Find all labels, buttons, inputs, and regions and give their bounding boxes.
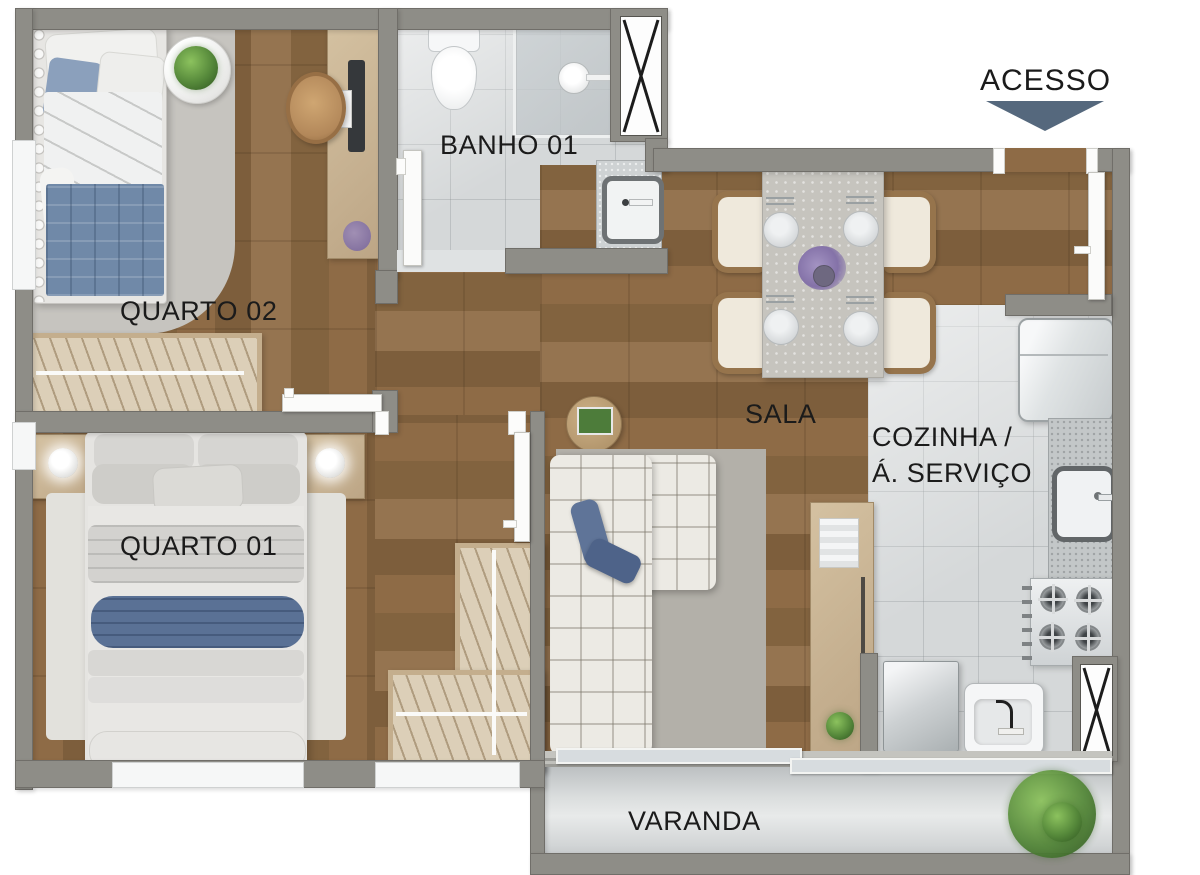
room-label-banho01: BANHO 01 — [440, 130, 578, 161]
quarto01-bed-band — [88, 677, 304, 703]
dining-chair — [712, 191, 764, 273]
access-label: ACESSO — [980, 64, 1111, 98]
quarto01-lamp-right — [315, 448, 345, 478]
room-label-quarto02: QUARTO 02 — [120, 296, 277, 327]
sala-sofa-left-arm — [550, 455, 652, 755]
ventilation-shaft — [620, 16, 662, 136]
quarto01-door-handle — [503, 520, 517, 528]
room-label-sala: SALA — [745, 399, 816, 430]
floor-plan: ACESSO QUARTO 02 BANHO 01 SALA COZINHA /… — [0, 0, 1200, 875]
room-label-cozinha-line1: COZINHA / — [872, 422, 1032, 453]
dining-cutlery — [766, 197, 794, 205]
quarto01-window-bottom — [112, 762, 304, 788]
banho01-sink — [602, 176, 664, 244]
quarto01-bed-band — [88, 650, 304, 676]
wall-top — [15, 8, 668, 30]
quarto01-closet-rail — [396, 712, 527, 716]
room-label-cozinha: COZINHA / Á. SERVIÇO — [872, 422, 1032, 489]
banho01-door-handle — [396, 158, 406, 175]
dining-chair — [884, 191, 936, 273]
stove-burner — [1039, 624, 1065, 650]
dining-cutlery — [846, 296, 874, 304]
wall-quarto02-door-stub — [375, 270, 398, 304]
wall-right — [1112, 148, 1130, 875]
wall-banho-bottom — [505, 248, 668, 274]
varanda-plant-inner — [1042, 802, 1082, 842]
quarto02-blanket — [46, 184, 164, 296]
sala-console-handle — [861, 577, 865, 653]
dining-chair — [884, 292, 936, 374]
quarto02-desk-chair — [286, 72, 346, 144]
servico-washer — [883, 661, 959, 752]
quarto01-closet-horizontal — [388, 670, 545, 772]
servico-tub-lever — [998, 728, 1024, 735]
stove-burner — [1040, 586, 1066, 612]
stove-burner — [1076, 587, 1102, 613]
corridor-jamb — [375, 411, 389, 435]
cozinha-fridge — [1018, 318, 1114, 422]
access-arrow-icon — [986, 101, 1104, 131]
dining-plate — [843, 311, 879, 347]
quarto02-door-handle — [284, 388, 294, 398]
cozinha-stove-knobs — [1022, 582, 1032, 660]
quarto02-window — [12, 140, 36, 290]
sala-console-plant — [826, 712, 854, 740]
wall-quarto02-banho — [378, 8, 398, 278]
entry-threshold — [1002, 148, 1088, 172]
room-label-cozinha-line2: Á. SERVIÇO — [872, 458, 1032, 489]
entry-jamb — [1086, 148, 1098, 174]
dining-cutlery — [766, 295, 794, 303]
room-label-varanda: VARANDA — [628, 806, 761, 837]
quarto02-desk-decor — [343, 221, 371, 251]
entry-jamb — [993, 148, 1005, 174]
dining-plate — [843, 211, 879, 247]
ventilation-shaft — [1080, 664, 1113, 756]
shaft-x-icon — [621, 17, 661, 135]
closet-window-bottom — [375, 762, 520, 788]
dining-plate — [763, 309, 799, 345]
sala-console-magazines — [819, 518, 859, 568]
quarto02-wardrobe-rail — [36, 371, 244, 375]
wall-quarto-divider — [15, 411, 380, 433]
cozinha-fridge-seam — [1020, 354, 1108, 356]
servico-tub-faucet — [996, 700, 1013, 729]
varanda-sliding-panel — [556, 748, 802, 764]
dining-plate — [763, 212, 799, 248]
banho01-faucet-base — [622, 199, 629, 206]
cozinha-sink — [1052, 466, 1116, 542]
quarto01-closet-rail — [492, 550, 496, 755]
quarto01-window-side — [12, 422, 36, 470]
entry-door — [1088, 172, 1105, 300]
stove-burner — [1075, 625, 1101, 651]
dining-vase — [813, 265, 835, 287]
quarto02-door — [282, 394, 382, 412]
wall-left — [15, 8, 33, 790]
quarto01-blue-runner — [91, 596, 304, 648]
shaft-x-icon — [1081, 665, 1112, 755]
banho01-faucet — [629, 199, 653, 206]
dining-cutlery — [846, 196, 874, 204]
sala-side-table-book — [577, 407, 613, 435]
wall-corridor-right — [530, 411, 545, 875]
room-label-quarto01: QUARTO 01 — [120, 531, 277, 562]
entry-door-handle — [1074, 246, 1091, 254]
quarto01-lamp-left — [48, 448, 78, 478]
quarto02-plant — [174, 46, 218, 90]
dining-chair — [712, 292, 764, 374]
